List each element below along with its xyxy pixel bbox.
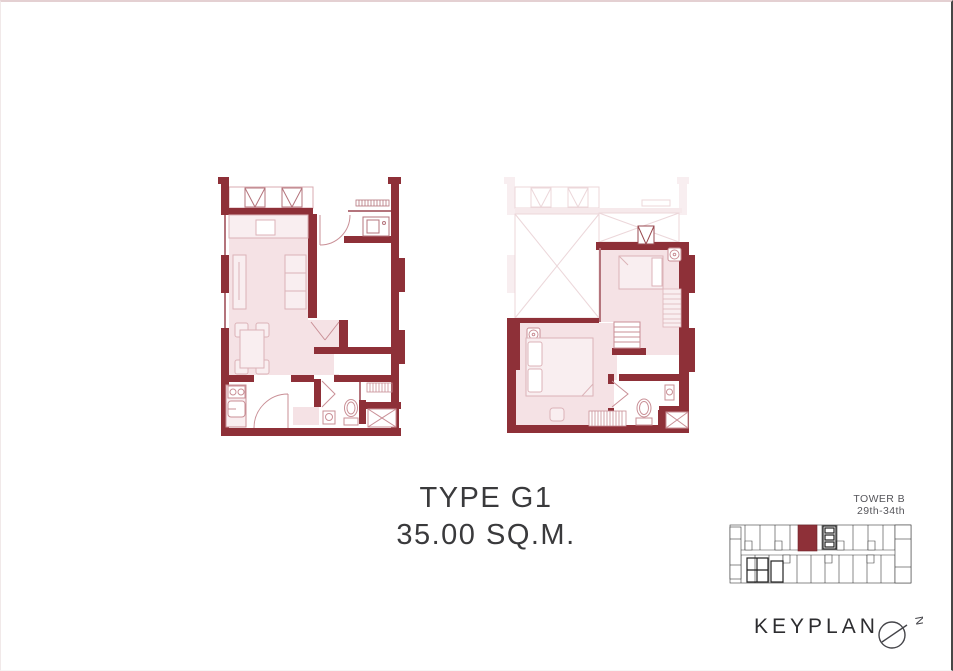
towel-rack [367,383,392,392]
stairs [614,322,640,348]
unit-area-label: 35.00 SQ.M. [356,517,616,554]
wardrobe-small [663,289,681,327]
dining-set [235,323,269,374]
sofa [285,255,306,309]
toilet [344,400,358,426]
kitchen-counter [226,385,246,427]
stool [550,408,564,421]
keyplan-caption: KEYPLAN [754,615,879,639]
bathroom-sink [665,385,674,400]
entry-rack [356,200,389,206]
floorplan-page: TYPE G1 35.00 SQ.M. TOWER B 29th-34th [0,0,953,671]
tower-floors: 29th-34th [853,505,905,517]
kitchen-counter-top [229,215,308,238]
bed-small [619,256,663,289]
keyplan-highlight-unit [798,525,817,551]
unit-title: TYPE G1 35.00 SQ.M. [356,480,616,554]
keyplan-diagram [727,519,917,593]
floor-plan-upper [504,170,699,450]
toilet [636,399,652,425]
washing-machine [363,217,389,236]
shaft-icon [666,412,688,428]
north-label: N [912,615,923,626]
tower-label: TOWER B 29th-34th [853,493,905,517]
bathroom-sink [323,411,335,424]
tv-console [233,255,246,309]
unit-type-label: TYPE G1 [356,480,616,517]
north-compass-icon: N [867,608,923,656]
tower-name: TOWER B [853,493,905,505]
stair-railing [599,248,601,322]
shaft-icon [368,409,396,427]
ac-unit-icon [638,226,654,244]
wardrobe-master [589,411,626,426]
bed-master [526,338,593,396]
floor-plan-lower [216,170,406,450]
